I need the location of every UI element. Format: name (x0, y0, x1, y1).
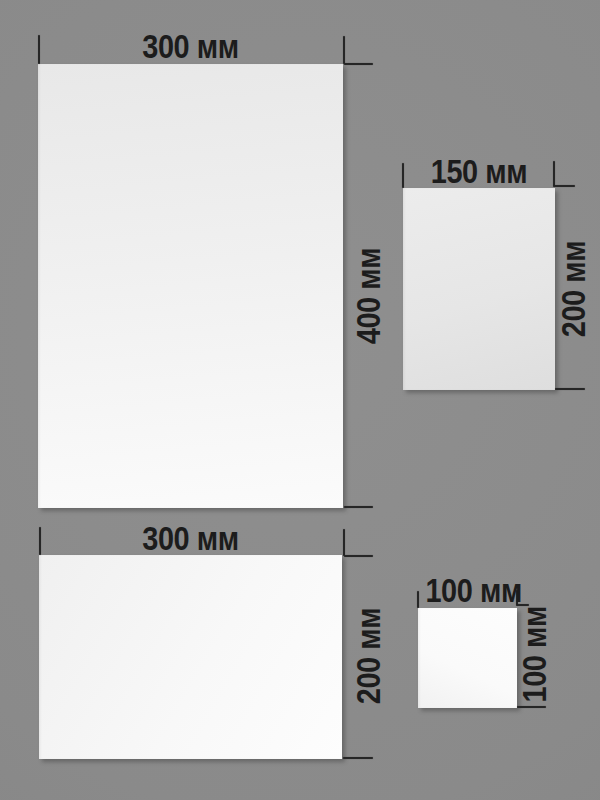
sheet-150x200-width-label: 150 мм (414, 154, 543, 188)
sheet-100x100 (418, 608, 517, 708)
sheet-150x200 (403, 188, 555, 390)
dimension-tick (417, 591, 419, 608)
dimension-tick (39, 527, 41, 555)
dimension-tick (343, 36, 345, 64)
dimension-tick (344, 555, 373, 557)
sheet-size-diagram: 300 мм 400 мм 150 мм 200 мм 300 мм 200 м… (0, 0, 600, 800)
sheet-300x200-width-label: 300 мм (62, 521, 320, 555)
sheet-300x400-width-label: 300 мм (61, 29, 320, 63)
dimension-tick (554, 185, 575, 187)
dimension-tick (517, 706, 546, 708)
dimension-tick (344, 63, 373, 65)
sheet-100x100-height-label: 100 мм (517, 618, 551, 703)
sheet-300x400-height-label: 400 мм (351, 107, 385, 484)
dimension-tick (555, 388, 585, 390)
dimension-tick (344, 506, 373, 508)
dimension-tick (402, 163, 404, 188)
dimension-tick (38, 35, 40, 64)
sheet-300x400 (38, 64, 343, 508)
dimension-tick (553, 161, 555, 187)
dimension-tick (343, 529, 345, 556)
sheet-100x100-width-label: 100 мм (425, 573, 509, 607)
sheet-300x200 (39, 555, 342, 759)
sheet-150x200-height-label: 200 мм (556, 203, 590, 376)
sheet-300x200-height-label: 200 мм (351, 569, 385, 742)
dimension-tick (343, 757, 373, 759)
